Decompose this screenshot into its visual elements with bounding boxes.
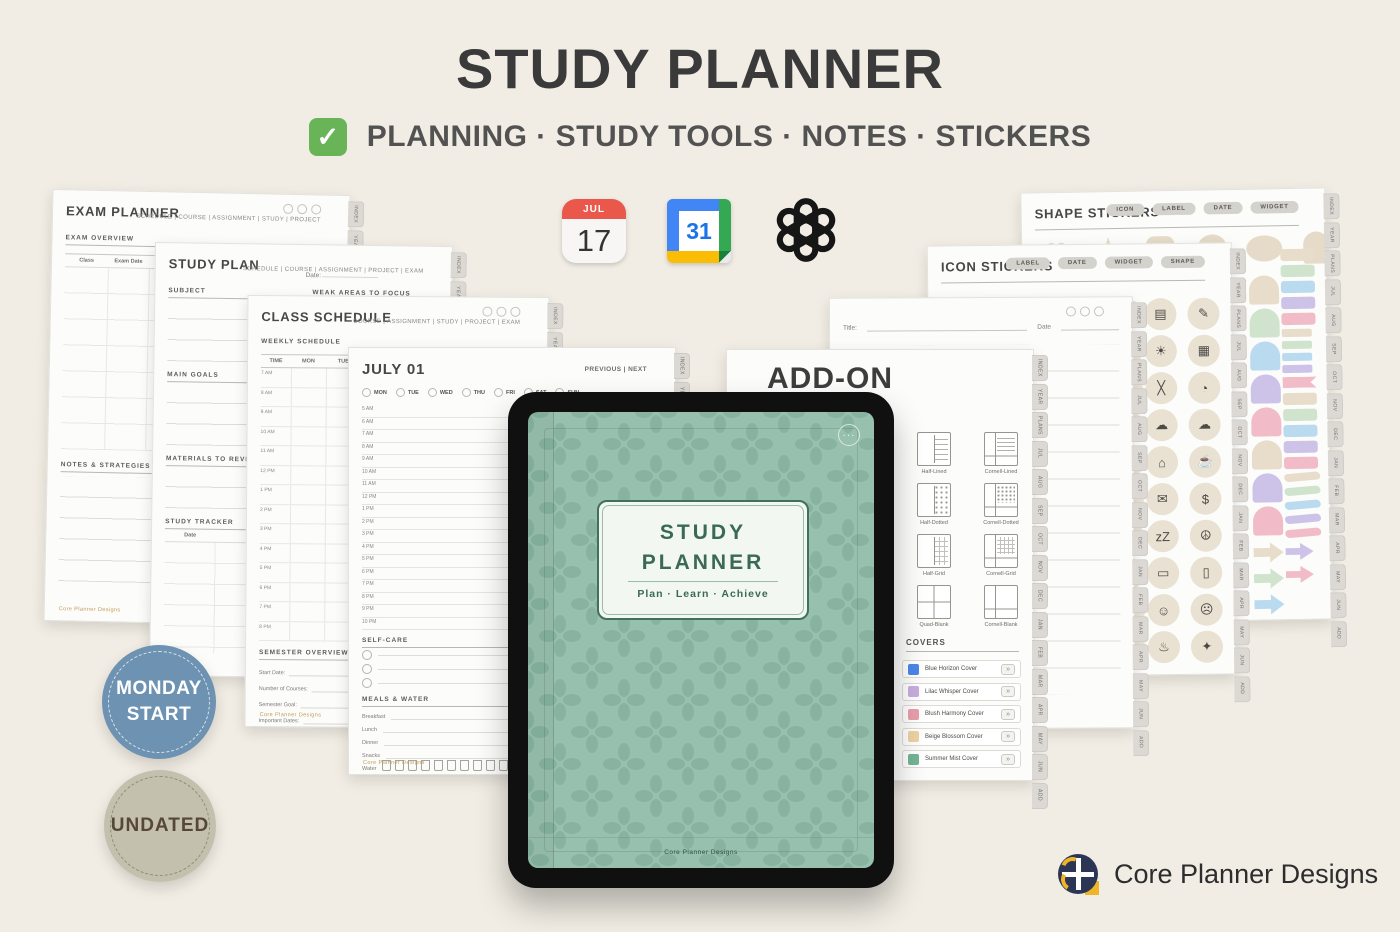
- notes-title-label: Title:: [843, 325, 857, 332]
- time-label: 3 PM: [260, 524, 290, 543]
- side-tab[interactable]: JUN: [1234, 647, 1250, 673]
- day-circle-icon: [494, 388, 503, 397]
- mail-icon[interactable]: ✉: [1146, 483, 1178, 515]
- small-label-sticker[interactable]: [1282, 353, 1312, 362]
- meditation-icon[interactable]: ☮: [1190, 520, 1222, 552]
- template-cell[interactable]: Cornell-Blank: [979, 585, 1023, 628]
- label-sticker[interactable]: [1281, 281, 1315, 294]
- template-cell[interactable]: Half-Dotted: [912, 483, 956, 526]
- window-dots-icon: [1066, 306, 1104, 316]
- day-circle-icon: [362, 388, 371, 397]
- time-label: 2 PM: [260, 505, 290, 524]
- apple-calendar-month: JUL: [562, 199, 626, 219]
- water-cup-icon[interactable]: [473, 760, 482, 771]
- tablet-mockup: ··· STUDY PLANNER Plan · Learn · Achieve…: [508, 392, 894, 888]
- arrow-sticker[interactable]: [1286, 566, 1314, 583]
- side-tab[interactable]: APR: [1032, 697, 1048, 723]
- time-label: 8 PM: [259, 622, 289, 641]
- side-tab[interactable]: NOV: [1132, 502, 1148, 528]
- page-title: STUDY PLANNER: [0, 36, 1400, 101]
- checkbox-circle-icon[interactable]: [362, 678, 372, 688]
- cover-open-button[interactable]: »: [1001, 709, 1015, 720]
- time-label: 7 PM: [259, 602, 289, 621]
- covers-label: COVERS: [906, 638, 1019, 652]
- exam-column-header: Class: [65, 254, 108, 267]
- template-cell[interactable]: Cornell-Lined: [979, 432, 1023, 475]
- side-tab[interactable]: JAN: [1328, 450, 1344, 476]
- ribbon-sticker[interactable]: [1285, 499, 1321, 510]
- category-pill[interactable]: SHAPE: [1161, 256, 1205, 268]
- brand-footer: Core Planner Designs: [1056, 852, 1378, 896]
- side-tab[interactable]: FEB: [1328, 478, 1344, 504]
- tagline-row: ✓ PLANNING · STUDY TOOLS · NOTES · STICK…: [0, 118, 1400, 156]
- notes-date-field[interactable]: [1061, 322, 1119, 330]
- water-cup-icon[interactable]: [447, 760, 456, 771]
- side-tab[interactable]: AUG: [1032, 469, 1048, 495]
- checkbox-circle-icon[interactable]: [362, 650, 372, 660]
- apple-calendar-day: 17: [562, 219, 626, 263]
- label-sticker[interactable]: [1284, 457, 1318, 470]
- google-calendar-day: 31: [679, 211, 719, 251]
- template-cell[interactable]: Cornell-Dotted: [979, 483, 1023, 526]
- ribbon-sticker[interactable]: [1284, 471, 1320, 482]
- lightbulb-icon[interactable]: ☀: [1145, 335, 1177, 367]
- time-label: 7 AM: [261, 368, 291, 387]
- side-tab[interactable]: APR: [1329, 535, 1345, 561]
- class-schedule-nav[interactable]: COURSE | ASSIGNMENT | STUDY | PROJECT | …: [353, 319, 520, 326]
- time-label: 12 PM: [260, 466, 290, 485]
- cover-row[interactable]: Blush Harmony Cover »: [902, 705, 1021, 723]
- side-tab[interactable]: MAR: [1329, 507, 1345, 533]
- cover-open-button[interactable]: »: [1001, 754, 1015, 765]
- sparkles-icon[interactable]: ✦: [1191, 631, 1223, 663]
- template-cell[interactable]: Cornell-Grid: [979, 534, 1023, 577]
- side-tab[interactable]: ADD: [1234, 676, 1250, 702]
- small-label-sticker[interactable]: [1282, 365, 1312, 374]
- time-label: 6 PM: [259, 583, 289, 602]
- page-footer-brand: Core Planner Designs: [59, 606, 121, 613]
- time-label: 1 PM: [260, 485, 290, 504]
- arrow-sticker[interactable]: [1285, 543, 1313, 560]
- time-label: 10 AM: [260, 427, 290, 446]
- small-label-sticker[interactable]: [1282, 329, 1312, 338]
- side-tab[interactable]: SEP: [1231, 391, 1247, 417]
- side-tab[interactable]: AUG: [1131, 416, 1147, 442]
- car-icon[interactable]: ▭: [1147, 557, 1179, 589]
- label-sticker[interactable]: [1284, 441, 1318, 454]
- day-checkbox[interactable]: FRI: [494, 388, 515, 397]
- study-plan-nav[interactable]: SCHEDULE | COURSE | ASSIGNMENT | PROJECT…: [243, 266, 424, 275]
- shape-sticker[interactable]: [1244, 231, 1285, 266]
- side-tab[interactable]: OCT: [1232, 419, 1248, 445]
- tab-shape-column: [1249, 275, 1285, 617]
- side-tab[interactable]: PLANS: [1131, 359, 1147, 385]
- side-tab[interactable]: ADD: [1133, 730, 1149, 756]
- label-sticker[interactable]: [1281, 297, 1315, 310]
- day-circle-icon: [462, 388, 471, 397]
- side-tab[interactable]: FEB: [1233, 533, 1249, 559]
- category-pill[interactable]: LABEL: [1006, 257, 1050, 269]
- openai-logo-icon: [770, 194, 842, 266]
- tab-shape-sticker[interactable]: [1253, 506, 1284, 536]
- tab-shape-sticker[interactable]: [1250, 374, 1281, 404]
- side-tab[interactable]: YEAR: [1131, 331, 1147, 357]
- flask-icon[interactable]: ♨: [1148, 631, 1180, 663]
- side-tab[interactable]: FEB: [1032, 640, 1048, 666]
- cover-name: Summer Mist Cover: [925, 756, 995, 762]
- time-label: 11 AM: [260, 446, 290, 465]
- checkbox-circle-icon[interactable]: [362, 664, 372, 674]
- window-dots-icon: [482, 307, 520, 317]
- flag-sticker[interactable]: [1283, 377, 1317, 389]
- label-sticker[interactable]: [1283, 409, 1317, 422]
- day-checkbox[interactable]: TUE: [396, 388, 419, 397]
- cover-title-line2: PLANNER: [642, 550, 765, 575]
- coin-icon[interactable]: $: [1189, 483, 1221, 515]
- ribbon-sticker[interactable]: [1285, 513, 1321, 524]
- side-tab[interactable]: APR: [1233, 590, 1249, 616]
- tagline-text: PLANNING · STUDY TOOLS · NOTES · STICKER…: [367, 120, 1091, 154]
- cover-open-button[interactable]: »: [1001, 731, 1015, 742]
- time-label: 5 PM: [260, 563, 290, 582]
- side-tab[interactable]: JAN: [1132, 559, 1148, 585]
- tab-shape-sticker[interactable]: [1249, 275, 1280, 305]
- brand-name: Core Planner Designs: [1114, 859, 1378, 890]
- arrow-sticker[interactable]: [1254, 594, 1284, 615]
- side-tab[interactable]: OCT: [1032, 526, 1048, 552]
- ribbon-sticker[interactable]: [1285, 527, 1321, 538]
- side-tab[interactable]: YEAR: [1032, 384, 1048, 410]
- side-tab[interactable]: DEC: [1232, 476, 1248, 502]
- side-tab[interactable]: JAN: [1232, 505, 1248, 531]
- side-tab[interactable]: JUL: [1325, 279, 1341, 305]
- side-tab[interactable]: NOV: [1232, 448, 1248, 474]
- side-tab[interactable]: DEC: [1132, 530, 1148, 556]
- side-tab[interactable]: JUL: [1231, 334, 1247, 360]
- side-tab[interactable]: INDEX: [1323, 193, 1339, 219]
- side-tab[interactable]: APR: [1133, 644, 1149, 670]
- monday-start-badge: MONDAY START: [102, 645, 216, 759]
- label-sticker[interactable]: [1283, 393, 1317, 406]
- side-tab[interactable]: MAY: [1234, 619, 1250, 645]
- cover-footer-line: [528, 837, 874, 838]
- tab-shape-sticker[interactable]: [1252, 473, 1283, 503]
- side-tab[interactable]: JUL: [1032, 441, 1048, 467]
- side-tab[interactable]: SEP: [1326, 336, 1342, 362]
- label-sticker[interactable]: [1280, 249, 1314, 262]
- cover-swatch-icon: [908, 754, 919, 765]
- side-tab[interactable]: JUN: [1133, 701, 1149, 727]
- google-calendar-icon: 31: [667, 199, 731, 263]
- side-tab[interactable]: MAY: [1032, 726, 1048, 752]
- weekday-column-header: MON: [291, 355, 326, 367]
- side-tab[interactable]: MAR: [1233, 562, 1249, 588]
- template-cell[interactable]: Quad-Blank: [912, 585, 956, 628]
- cover-swatch-icon: [908, 686, 919, 697]
- tab-shape-sticker[interactable]: [1249, 308, 1280, 338]
- label-sticker-column: [1280, 249, 1322, 590]
- cover-frame-line: [544, 428, 858, 852]
- side-tab[interactable]: MAY: [1133, 673, 1149, 699]
- side-tab[interactable]: MAR: [1032, 669, 1048, 695]
- sleep-icon[interactable]: zZ: [1147, 520, 1179, 552]
- time-label: 9 AM: [261, 407, 291, 426]
- cover-tagline: Plan · Learn · Achieve: [637, 588, 768, 600]
- side-tab[interactable]: ADD: [1331, 621, 1347, 647]
- window-dots-icon: [283, 204, 321, 215]
- cover-footer-brand: Core Planner Designs: [528, 849, 874, 856]
- water-cup-icon[interactable]: [460, 760, 469, 771]
- cover-title-card: STUDY PLANNER Plan · Learn · Achieve: [597, 500, 809, 620]
- water-label: Water: [362, 766, 376, 772]
- side-tab[interactable]: MAR: [1133, 616, 1149, 642]
- category-pill[interactable]: WIDGET: [1104, 256, 1152, 269]
- cover-name: Beige Blossom Cover: [925, 734, 995, 740]
- side-tab[interactable]: ADD: [1032, 783, 1048, 809]
- home-icon[interactable]: ⌂: [1146, 446, 1178, 478]
- calendar-icon[interactable]: ▦: [1188, 335, 1220, 367]
- promo-canvas: STUDY PLANNER ✓ PLANNING · STUDY TOOLS ·…: [0, 0, 1400, 932]
- side-tab[interactable]: INDEX: [348, 201, 365, 227]
- notes-date-label: Date: [1037, 324, 1051, 331]
- side-tab[interactable]: SEP: [1132, 445, 1148, 471]
- notes-title-field[interactable]: [867, 323, 1027, 332]
- side-tab[interactable]: YEAR: [1324, 222, 1340, 248]
- time-label: 8 AM: [261, 388, 291, 407]
- day-checkbox[interactable]: WED: [428, 388, 453, 397]
- side-tab[interactable]: INDEX: [1230, 248, 1246, 274]
- side-tab[interactable]: JUN: [1330, 592, 1346, 618]
- side-tab[interactable]: OCT: [1132, 473, 1148, 499]
- side-tab[interactable]: INDEX: [674, 353, 690, 379]
- side-tab-strip: INDEXYEARPLANSJULAUGSEPOCTNOVDECJANFEBMA…: [1131, 302, 1149, 756]
- side-tab[interactable]: MAY: [1330, 564, 1346, 590]
- cover-row[interactable]: Lilac Whisper Cover »: [902, 683, 1021, 701]
- undated-badge: UNDATED: [104, 770, 216, 882]
- side-tab[interactable]: FEB: [1132, 587, 1148, 613]
- side-tab[interactable]: PLANS: [1230, 305, 1246, 331]
- cover-row[interactable]: Blue Horizon Cover »: [902, 660, 1021, 678]
- page-footer-brand: Core Planner Designs: [260, 712, 322, 718]
- cover-row[interactable]: Summer Mist Cover »: [902, 750, 1021, 768]
- crossed-pencils-icon[interactable]: ╳: [1145, 372, 1177, 404]
- side-tab[interactable]: JUL: [1131, 388, 1147, 414]
- category-pill[interactable]: LABEL: [1152, 203, 1196, 216]
- template-cell[interactable]: Half-Lined: [912, 432, 956, 475]
- day-circle-icon: [396, 388, 405, 397]
- category-pill[interactable]: ICON: [1106, 204, 1144, 217]
- category-pill[interactable]: WIDGET: [1250, 201, 1298, 214]
- cloud-upload-icon[interactable]: ☁: [1188, 409, 1220, 441]
- notebook-icon[interactable]: ▤: [1144, 298, 1176, 330]
- arrow-sticker[interactable]: [1253, 542, 1283, 563]
- side-tab[interactable]: OCT: [1326, 364, 1342, 390]
- category-pill[interactable]: DATE: [1058, 257, 1097, 269]
- cover-divider: [628, 581, 778, 582]
- side-tab[interactable]: PLANS: [1032, 412, 1048, 438]
- arrow-sticker[interactable]: [1254, 568, 1284, 589]
- side-tab[interactable]: DEC: [1032, 583, 1048, 609]
- coffee-icon[interactable]: ☕: [1189, 446, 1221, 478]
- water-cup-icon[interactable]: [486, 760, 495, 771]
- exam-column-header: Exam Date: [108, 255, 149, 268]
- label-sticker[interactable]: [1283, 425, 1317, 438]
- cover-row[interactable]: Beige Blossom Cover »: [902, 728, 1021, 746]
- side-tab[interactable]: INDEX: [1131, 302, 1147, 328]
- previous-next-nav[interactable]: PREVIOUS | NEXT: [585, 366, 647, 373]
- cover-open-button[interactable]: »: [1001, 686, 1015, 697]
- more-options-icon[interactable]: ···: [838, 424, 860, 446]
- label-sticker[interactable]: [1281, 265, 1315, 278]
- icon-sticker-grid: ▤✎☀▦╳◔☁☁⌂☕✉$zZ☮▭▯☺☹♨✦: [1144, 298, 1223, 664]
- side-tab[interactable]: PLANS: [1324, 250, 1340, 276]
- side-tab[interactable]: NOV: [1032, 555, 1048, 581]
- sticker-category-pills: LABELDATEWIDGETSHAPE: [1006, 256, 1205, 270]
- cloud-download-icon[interactable]: ☁: [1145, 409, 1177, 441]
- day-circle-icon: [428, 388, 437, 397]
- cover-swatch-icon: [908, 664, 919, 675]
- side-tab[interactable]: AUG: [1231, 362, 1247, 388]
- side-tab[interactable]: YEAR: [1230, 277, 1246, 303]
- category-pill[interactable]: DATE: [1204, 202, 1243, 215]
- side-tab[interactable]: SEP: [1032, 498, 1048, 524]
- small-label-sticker[interactable]: [1282, 341, 1312, 350]
- tab-shape-sticker[interactable]: [1252, 440, 1283, 470]
- side-tab-strip: INDEXYEARPLANSJULAUGSEPOCTNOVDECJANFEBMA…: [1032, 355, 1048, 809]
- time-label: 4 PM: [260, 544, 290, 563]
- tab-shape-sticker[interactable]: [1250, 341, 1281, 371]
- cover-name: Blush Harmony Cover: [925, 711, 995, 717]
- cover-swatch-icon: [908, 709, 919, 720]
- cover-name: Blue Horizon Cover: [925, 666, 995, 672]
- side-tab[interactable]: JUN: [1032, 754, 1048, 780]
- side-tab[interactable]: INDEX: [1032, 355, 1048, 381]
- clock-icon[interactable]: ◔: [1188, 372, 1220, 404]
- side-tab[interactable]: NOV: [1327, 393, 1343, 419]
- template-cell[interactable]: Half-Grid: [912, 534, 956, 577]
- day-checkbox[interactable]: THU: [462, 388, 485, 397]
- day-checkbox[interactable]: MON: [362, 388, 387, 397]
- weekday-column-header: TIME: [261, 355, 291, 367]
- ribbon-sticker[interactable]: [1284, 485, 1320, 496]
- tab-shape-sticker[interactable]: [1251, 407, 1282, 437]
- add-on-title: ADD-ON: [767, 362, 1033, 396]
- cover-title-line1: STUDY: [660, 520, 746, 545]
- side-tab[interactable]: JAN: [1032, 612, 1048, 638]
- water-cup-icon[interactable]: [434, 760, 443, 771]
- check-icon: ✓: [309, 118, 347, 156]
- page-footer-brand: Core Planner Designs: [363, 760, 425, 766]
- pencil-icon[interactable]: ✎: [1187, 298, 1219, 330]
- apple-calendar-icon: JUL 17: [562, 199, 626, 263]
- side-tab[interactable]: DEC: [1327, 421, 1343, 447]
- side-tab[interactable]: INDEX: [547, 303, 563, 329]
- bus-icon[interactable]: ▯: [1190, 557, 1222, 589]
- label-sticker[interactable]: [1281, 313, 1315, 326]
- side-tab[interactable]: AUG: [1325, 307, 1341, 333]
- planner-cover-screen: ··· STUDY PLANNER Plan · Learn · Achieve…: [528, 412, 874, 868]
- neutral-face-icon[interactable]: ☹: [1190, 594, 1222, 626]
- happy-face-icon[interactable]: ☺: [1147, 594, 1179, 626]
- cover-swatch-icon: [908, 731, 919, 742]
- side-tab[interactable]: INDEX: [451, 252, 467, 278]
- cover-list: Blue Horizon Cover » Lilac Whisper Cover…: [902, 660, 1021, 768]
- brand-logo-icon: [1056, 852, 1100, 896]
- tracker-date-column: Date: [165, 529, 216, 542]
- cover-open-button[interactable]: »: [1001, 664, 1015, 675]
- cover-name: Lilac Whisper Cover: [925, 689, 995, 695]
